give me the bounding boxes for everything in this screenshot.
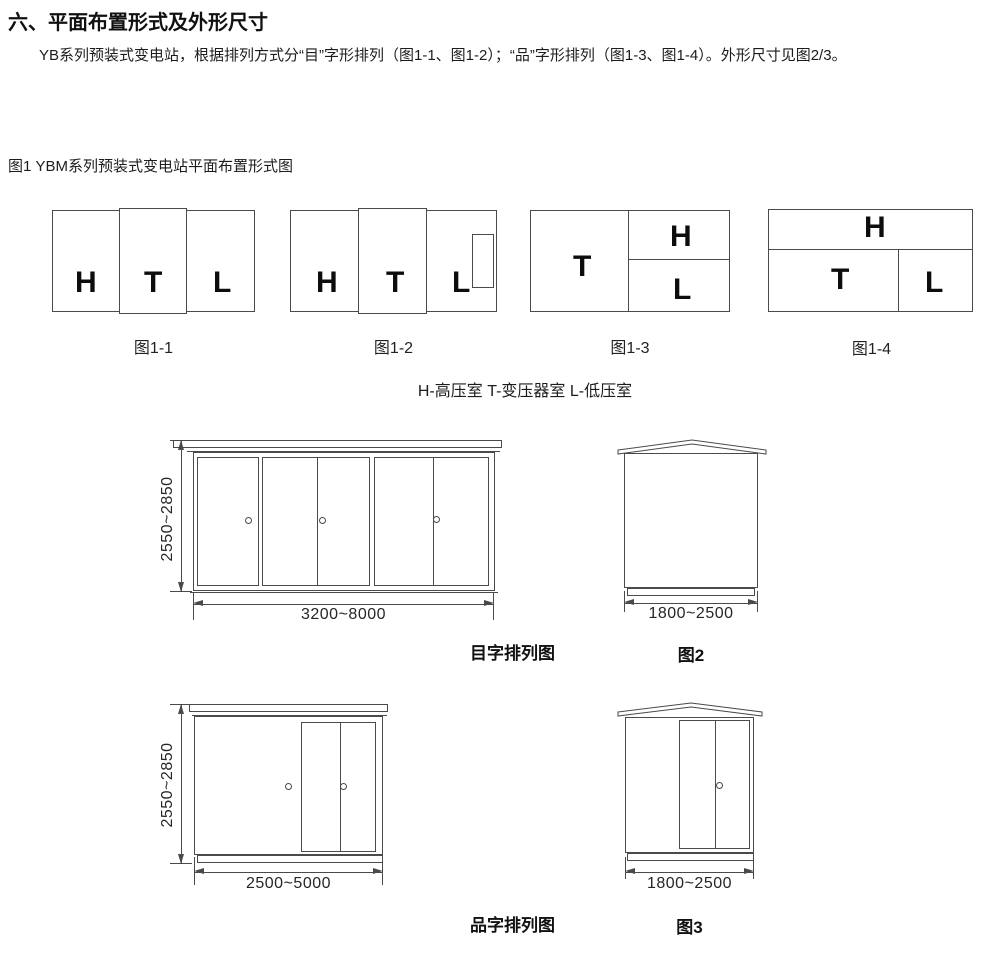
dim-arrow-icon xyxy=(194,868,204,874)
width-dimension-label: 3200~8000 xyxy=(193,607,494,623)
base-plinth xyxy=(197,855,383,863)
height-dimension-label: 2550~2850 xyxy=(159,742,177,827)
room-legend: H-高压室 T-变压器室 L-低压室 xyxy=(310,377,740,401)
plan-outline xyxy=(530,210,730,312)
door-handle-icon xyxy=(245,517,252,524)
dim-line-horizontal xyxy=(625,872,754,873)
room-letter: H xyxy=(864,212,886,244)
elevation-pin: 2550~2850 2500~5000 品字排列图 xyxy=(160,700,590,940)
width-dimension-label: 1800~2500 xyxy=(620,876,759,892)
room-letter: T xyxy=(573,251,591,283)
plan-caption: 图1-3 xyxy=(530,334,730,358)
elevation-caption: 目字排列图 xyxy=(470,639,555,664)
figure1-label: 图1 YBM系列预装式变电站平面布置形式图 xyxy=(8,155,293,176)
catalog-page: 六、平面布置形式及外形尺寸 YB系列预装式变电站，根据排列方式分“目”字形排列（… xyxy=(0,0,1008,962)
door-handle-icon xyxy=(340,783,347,790)
door-handle-icon xyxy=(433,516,440,523)
dim-arrow-icon xyxy=(178,704,184,714)
dim-arrow-icon xyxy=(744,868,754,874)
double-door xyxy=(374,457,489,586)
dim-arrow-icon xyxy=(178,854,184,864)
section-title: 六、平面布置形式及外形尺寸 xyxy=(8,6,268,35)
elevation-caption: 品字排列图 xyxy=(470,911,555,936)
room-letter: T xyxy=(144,267,162,299)
plan-diagram-1-2: H T L 图1-2 xyxy=(290,210,497,362)
dim-line-horizontal xyxy=(194,872,383,873)
gable-roof xyxy=(617,702,765,718)
width-dimension-label: 1800~2500 xyxy=(619,606,763,622)
door-handle-icon xyxy=(716,782,723,789)
dim-line-vertical xyxy=(181,704,182,864)
base-plinth xyxy=(627,588,755,596)
room-letter: H xyxy=(316,267,338,299)
width-dimension-label: 2500~5000 xyxy=(194,876,383,892)
dim-line-horizontal xyxy=(193,604,494,605)
dim-arrow-icon xyxy=(624,599,634,605)
base-line xyxy=(190,592,498,593)
elevation-caption: 图2 xyxy=(624,641,758,666)
plan-divider xyxy=(768,249,973,250)
double-door xyxy=(301,722,376,852)
dim-line-horizontal xyxy=(624,603,758,604)
dim-arrow-icon xyxy=(178,440,184,450)
plan-divider xyxy=(898,249,899,312)
room-letter: T xyxy=(831,264,849,296)
dim-arrow-icon xyxy=(178,582,184,592)
dim-line-vertical xyxy=(181,440,182,592)
dim-arrow-icon xyxy=(193,600,203,606)
double-door xyxy=(262,457,370,586)
elevation-fig2: 1800~2500 图2 xyxy=(610,435,780,667)
plan-diagram-1-3: T H L 图1-3 xyxy=(530,210,730,362)
elevation-mu: 2550~2850 3200~8000 目字排列图 xyxy=(160,435,590,667)
room-letter: L xyxy=(673,274,691,306)
room-letter: H xyxy=(75,267,97,299)
plan-divider xyxy=(628,259,730,260)
cabinet-outline xyxy=(472,234,494,288)
plan-diagram-1-1: H T L 图1-1 xyxy=(52,210,255,362)
plan-divider xyxy=(628,210,629,312)
dim-arrow-icon xyxy=(625,868,635,874)
height-dimension-label: 2550~2850 xyxy=(159,476,177,561)
double-door xyxy=(679,720,750,849)
room-letter: L xyxy=(925,267,943,299)
elevation-fig3: 1800~2500 图3 xyxy=(610,700,780,940)
plan-caption: 图1-4 xyxy=(769,335,974,359)
enclosure-body xyxy=(624,453,758,588)
dim-arrow-icon xyxy=(484,600,494,606)
room-letter: H xyxy=(670,221,692,253)
dim-arrow-icon xyxy=(748,599,758,605)
dim-arrow-icon xyxy=(373,868,383,874)
room-letter: L xyxy=(452,267,470,299)
flat-roof-slab xyxy=(189,704,388,712)
door-handle-icon xyxy=(285,783,292,790)
door-handle-icon xyxy=(319,517,326,524)
flat-roof-slab xyxy=(173,440,502,448)
plan-caption: 图1-2 xyxy=(290,334,497,358)
elevation-caption: 图3 xyxy=(625,913,754,938)
intro-paragraph: YB系列预装式变电站，根据排列方式分“目”字形排列（图1-1、图1-2）；“品”… xyxy=(8,42,1002,70)
plan-caption: 图1-1 xyxy=(52,334,255,358)
plan-diagram-1-4: H T L 图1-4 xyxy=(768,209,973,362)
base-plinth xyxy=(627,853,754,861)
room-letter: L xyxy=(213,267,231,299)
room-letter: T xyxy=(386,267,404,299)
door-divider xyxy=(317,458,318,585)
